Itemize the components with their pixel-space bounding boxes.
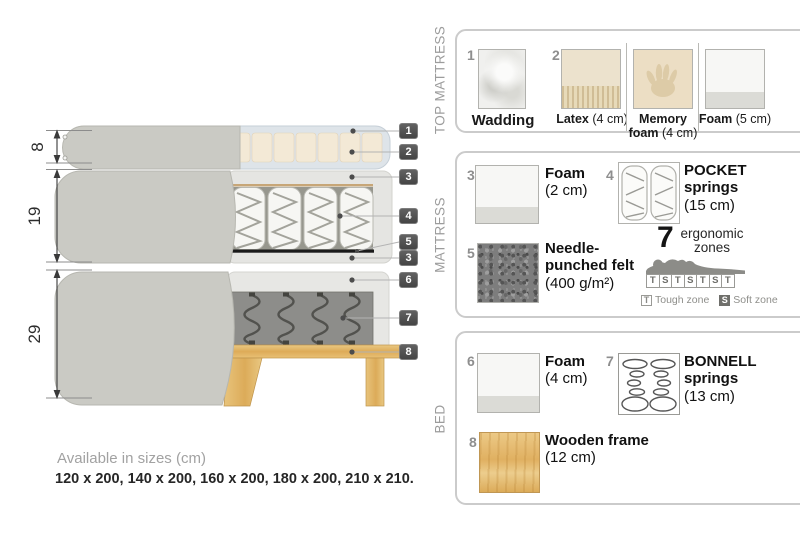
mattress-button: [63, 156, 67, 160]
zone-box: T: [721, 274, 735, 288]
section-label-mattress: MATTRESS: [433, 197, 448, 273]
tough-zone-icon: T: [641, 295, 652, 306]
wadding-swatch-image: [478, 49, 526, 109]
foam4-swatch-image: [477, 353, 540, 413]
callout-3b: 3: [399, 250, 418, 266]
dimension-label-mattress: 19: [25, 196, 45, 236]
dimension-label-top-mattress: 8: [28, 127, 48, 167]
bed-cross-section-diagram: [0, 0, 430, 470]
legend-number-3: 3: [467, 167, 475, 183]
felt-layer: [228, 250, 374, 253]
foam2-swatch-image: [475, 165, 539, 224]
bed-section: [55, 272, 404, 406]
zone-box: S: [684, 274, 698, 288]
legend-number-7: 7: [606, 353, 614, 369]
zone-box: S: [709, 274, 723, 288]
latex-blocks: [230, 133, 382, 162]
callout-6: 6: [399, 272, 418, 288]
pocket-springs-icon: [619, 163, 679, 223]
foam5-label: Foam (5 cm): [693, 113, 777, 127]
wooden-frame-label: Wooden frame (12 cm): [545, 432, 685, 467]
memory-foam-label: Memory foam (4 cm): [624, 113, 702, 140]
hand-imprint-icon: [634, 50, 692, 108]
legend-number-1: 1: [467, 47, 475, 63]
ergonomic-zones-widget: 7 ergonomic zones T S T S T S T T Tough …: [625, 225, 785, 315]
callout-4: 4: [399, 208, 418, 224]
mattress-panel: 3 Foam (2 cm) 4 POCKET springs (15 cm) 5…: [455, 151, 800, 318]
zone-box: S: [659, 274, 673, 288]
section-label-bed: BED: [433, 405, 448, 434]
legend-number-6: 6: [467, 353, 475, 369]
foam4-label: Foam (4 cm): [545, 353, 615, 388]
latex-swatch-image: [561, 49, 621, 109]
callout-1: 1: [399, 123, 418, 139]
callout-3a: 3: [399, 169, 418, 185]
sleeping-person-icon: [643, 256, 748, 276]
pocket-springs-label: POCKET springs (15 cm): [684, 162, 769, 214]
latex-label: Latex (4 cm): [549, 113, 635, 127]
legend-number-8: 8: [469, 434, 477, 450]
available-sizes-list: 120 x 200, 140 x 200, 160 x 200, 180 x 2…: [55, 471, 414, 487]
felt-swatch-image: [477, 243, 539, 303]
foam5-swatch-image: [705, 49, 765, 109]
wood-swatch-image: [479, 432, 540, 493]
legend-number-5: 5: [467, 245, 475, 261]
soft-zone-icon: S: [719, 295, 730, 306]
dimension-label-bed: 29: [25, 314, 45, 354]
top-mattress-section: [63, 126, 391, 169]
wadding-label: Wadding: [459, 113, 547, 129]
available-sizes-title: Available in sizes (cm): [57, 450, 206, 467]
bonnell-springs-label: BONNELL springs (13 cm): [684, 353, 774, 405]
callout-2: 2: [399, 144, 418, 160]
bed-leg-right: [366, 358, 384, 406]
top-mattress-panel: 1 Wadding 2 Latex (4 cm) Memory foam (4 …: [455, 29, 800, 133]
mattress-button: [63, 135, 67, 139]
tough-zone-label: Tough zone: [655, 294, 709, 306]
ergonomic-zones-count: 7: [657, 221, 674, 255]
callout-5: 5: [399, 234, 418, 250]
ergonomic-label-line2: zones: [678, 241, 746, 255]
bonnell-springs-swatch-image: [618, 353, 680, 415]
zone-box: T: [696, 274, 710, 288]
bed-panel: 6 Foam (4 cm) 7 BONNELL springs (13 cm): [455, 331, 800, 505]
zones-row: T S T S T S T: [647, 274, 735, 288]
zone-box: T: [671, 274, 685, 288]
zone-box: T: [646, 274, 660, 288]
legend-number-4: 4: [606, 167, 614, 183]
pocket-springs-swatch-image: [618, 162, 680, 224]
bonnell-springs-icon: [619, 354, 679, 414]
callout-7: 7: [399, 310, 418, 326]
zones-key: T Tough zone S Soft zone: [641, 294, 778, 306]
callout-8: 8: [399, 344, 418, 360]
felt-label: Needle-punched felt (400 g/m²): [545, 240, 637, 292]
legend-number-2: 2: [552, 47, 560, 63]
memory-foam-swatch-image: [633, 49, 693, 109]
section-label-top-mattress: TOP MATTRESS: [433, 26, 448, 134]
foam2-label: Foam (2 cm): [545, 165, 615, 200]
soft-zone-label: Soft zone: [733, 294, 777, 306]
bed-construction-infographic: 8 19 29 1 2 3 4 5 3 6 7 8 TOP MATTRESS M…: [0, 0, 800, 533]
